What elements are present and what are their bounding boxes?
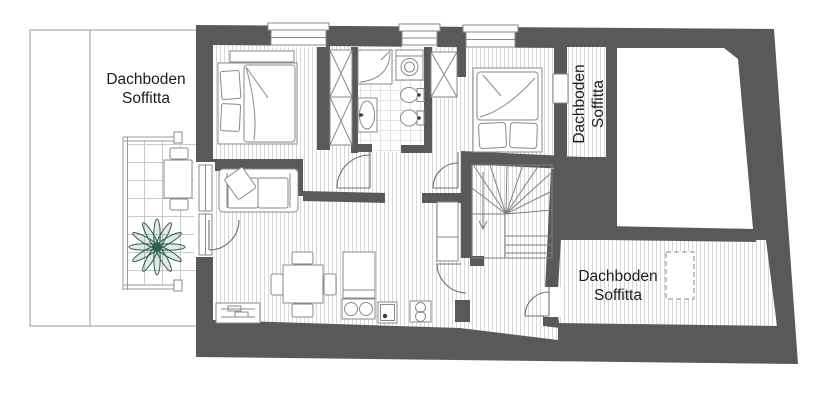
terrace	[123, 132, 197, 291]
kitchen-tall-cabinet	[343, 252, 375, 298]
attic-right-bottom-label-line2: Soffitta	[594, 287, 642, 304]
sofa	[219, 167, 298, 212]
bidet	[401, 88, 425, 103]
window-bathroom	[399, 24, 440, 47]
sideboard	[216, 303, 260, 323]
attic-right-top-label-line1: Dachboden	[571, 64, 588, 143]
chimney-dashed	[666, 252, 694, 299]
attic-right-door-gap	[544, 287, 561, 317]
attic-right-top-label-line2: Soffitta	[590, 80, 607, 128]
oven	[378, 302, 397, 323]
attic-left-label-line1: Dachboden	[106, 71, 185, 88]
hob-two-burners	[410, 301, 431, 322]
corner-shower	[358, 50, 392, 84]
wardrobe-hall	[431, 52, 457, 97]
washing-machine	[396, 50, 423, 80]
attic-left-label: Dachboden Soffitta	[106, 71, 185, 107]
attic-left-label-line2: Soffitta	[122, 90, 170, 107]
bedroom1-bed	[218, 51, 297, 144]
right-room-floor	[615, 48, 753, 229]
floor-plan-drawing: Dachboden Soffitta Dachboden Soffitta Da…	[0, 0, 836, 400]
attic-right-bottom-label-line1: Dachboden	[578, 268, 657, 285]
kitchen-sink-unit	[342, 299, 375, 319]
toilet	[401, 110, 425, 126]
terrace-door	[194, 162, 215, 257]
bedroom2-bed	[473, 68, 542, 152]
wardrobe-bedroom1	[330, 50, 352, 145]
tall-cupboard-hall	[437, 202, 458, 261]
window-bedroom2	[463, 25, 518, 48]
floor-plan: Dachboden Soffitta Dachboden Soffitta Da…	[0, 0, 836, 400]
window-bedroom1	[268, 23, 329, 47]
washbasin	[358, 98, 377, 132]
attic-strip-access-door	[553, 74, 568, 103]
